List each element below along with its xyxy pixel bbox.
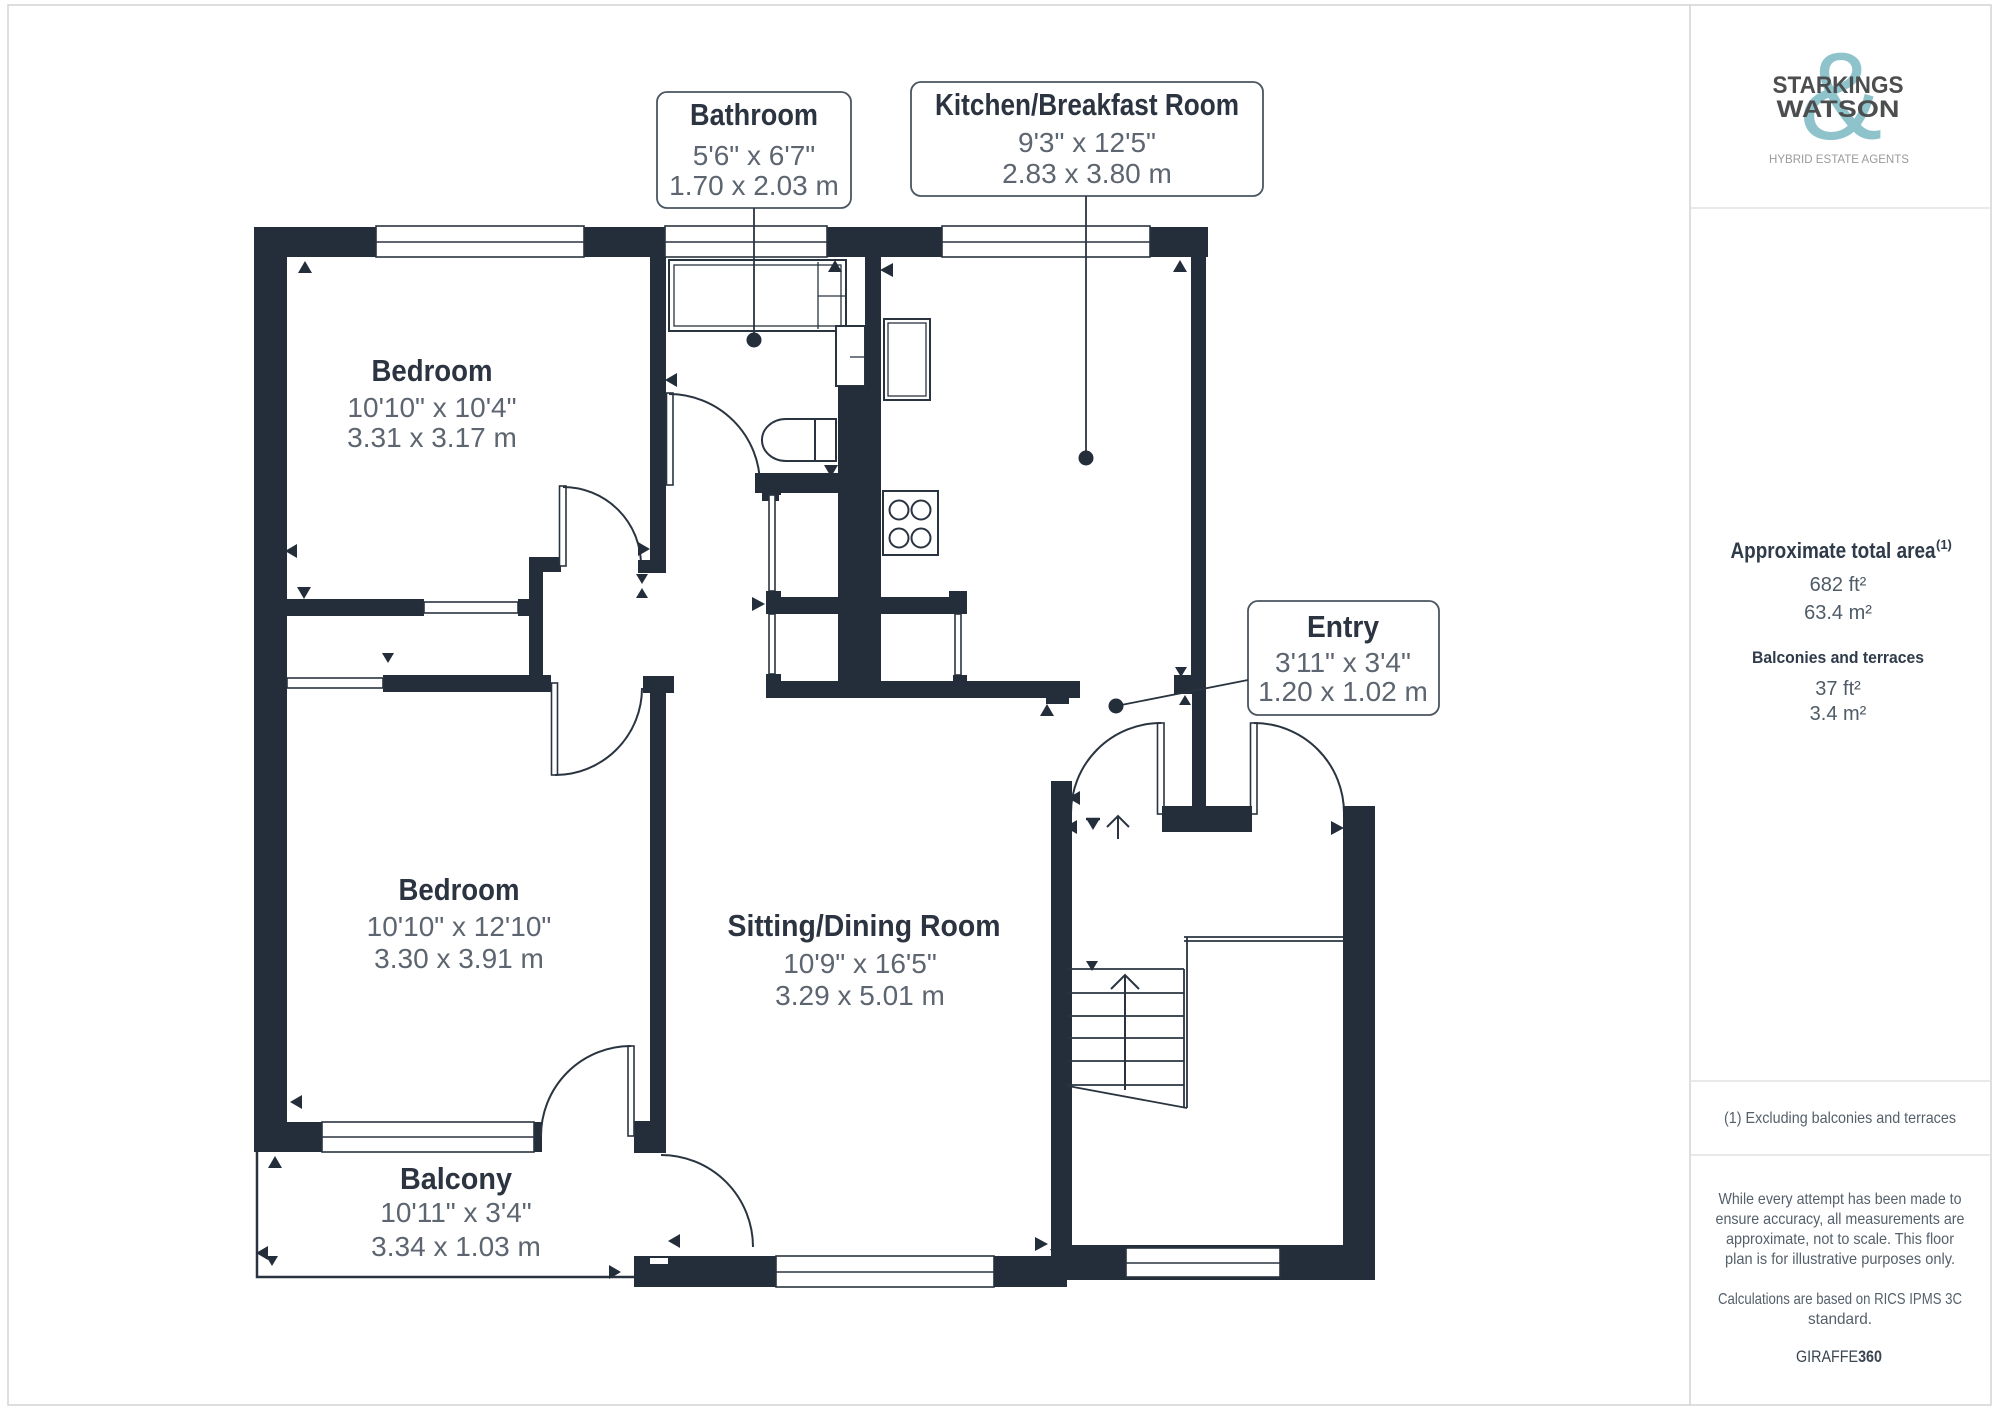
svg-text:10'10" x 12'10": 10'10" x 12'10"	[367, 911, 552, 942]
svg-text:3.31 x 3.17 m: 3.31 x 3.17 m	[347, 422, 517, 453]
svg-text:682 ft²: 682 ft²	[1810, 574, 1867, 596]
svg-text:Calculations are based on RICS: Calculations are based on RICS IPMS 3C	[1718, 1291, 1962, 1308]
svg-text:standard.: standard.	[1808, 1311, 1872, 1328]
svg-text:approximate, not to scale. Thi: approximate, not to scale. This floor	[1726, 1231, 1955, 1248]
svg-text:3.29 x 5.01 m: 3.29 x 5.01 m	[775, 980, 945, 1011]
svg-text:Approximate total area: Approximate total area	[1731, 538, 1937, 563]
svg-text:Balcony: Balcony	[400, 1161, 513, 1196]
svg-text:STARKINGS: STARKINGS	[1773, 72, 1904, 99]
svg-text:37 ft²: 37 ft²	[1815, 678, 1861, 700]
svg-text:WATSON: WATSON	[1777, 96, 1900, 123]
svg-text:5'6" x 6'7": 5'6" x 6'7"	[693, 140, 815, 171]
svg-text:2.83 x 3.80 m: 2.83 x 3.80 m	[1002, 158, 1172, 189]
svg-text:1.70 x 2.03 m: 1.70 x 2.03 m	[669, 170, 839, 201]
svg-text:GIRAFFE360: GIRAFFE360	[1796, 1347, 1882, 1366]
svg-text:1.20 x 1.02 m: 1.20 x 1.02 m	[1258, 676, 1428, 707]
svg-text:HYBRID ESTATE AGENTS: HYBRID ESTATE AGENTS	[1769, 152, 1909, 166]
svg-text:9'3" x 12'5": 9'3" x 12'5"	[1018, 127, 1156, 158]
svg-text:Entry: Entry	[1307, 609, 1380, 644]
svg-text:Sitting/Dining Room: Sitting/Dining Room	[728, 908, 1001, 943]
svg-text:Balconies and terraces: Balconies and terraces	[1752, 648, 1924, 667]
svg-text:Kitchen/Breakfast Room: Kitchen/Breakfast Room	[935, 87, 1239, 122]
svg-text:10'10" x 10'4": 10'10" x 10'4"	[347, 392, 516, 423]
svg-text:63.4 m²: 63.4 m²	[1804, 602, 1872, 624]
svg-text:10'9" x 16'5": 10'9" x 16'5"	[783, 948, 937, 979]
svg-text:plan is for illustrative purpo: plan is for illustrative purposes only.	[1725, 1251, 1955, 1268]
svg-text:ensure accuracy, all measureme: ensure accuracy, all measurements are	[1716, 1211, 1965, 1228]
svg-text:While every attempt has been m: While every attempt has been made to	[1719, 1191, 1962, 1208]
svg-text:(1) Excluding balconies and te: (1) Excluding balconies and terraces	[1724, 1110, 1956, 1127]
svg-text:3.34 x 1.03 m: 3.34 x 1.03 m	[371, 1231, 541, 1262]
svg-text:3.30 x 3.91 m: 3.30 x 3.91 m	[374, 943, 544, 974]
svg-text:3'11" x 3'4": 3'11" x 3'4"	[1275, 647, 1411, 678]
svg-text:Bedroom: Bedroom	[399, 872, 520, 907]
svg-text:3.4 m²: 3.4 m²	[1810, 703, 1867, 725]
svg-text:Bathroom: Bathroom	[690, 97, 818, 132]
svg-text:(1): (1)	[1936, 537, 1952, 552]
svg-text:Bedroom: Bedroom	[372, 353, 493, 388]
svg-text:10'11" x 3'4": 10'11" x 3'4"	[380, 1197, 531, 1228]
